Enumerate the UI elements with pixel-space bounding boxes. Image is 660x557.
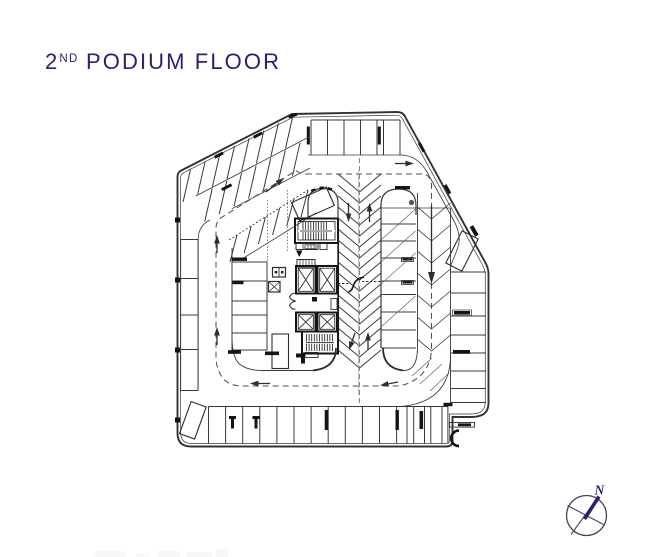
svg-text:N: N [594,483,606,498]
